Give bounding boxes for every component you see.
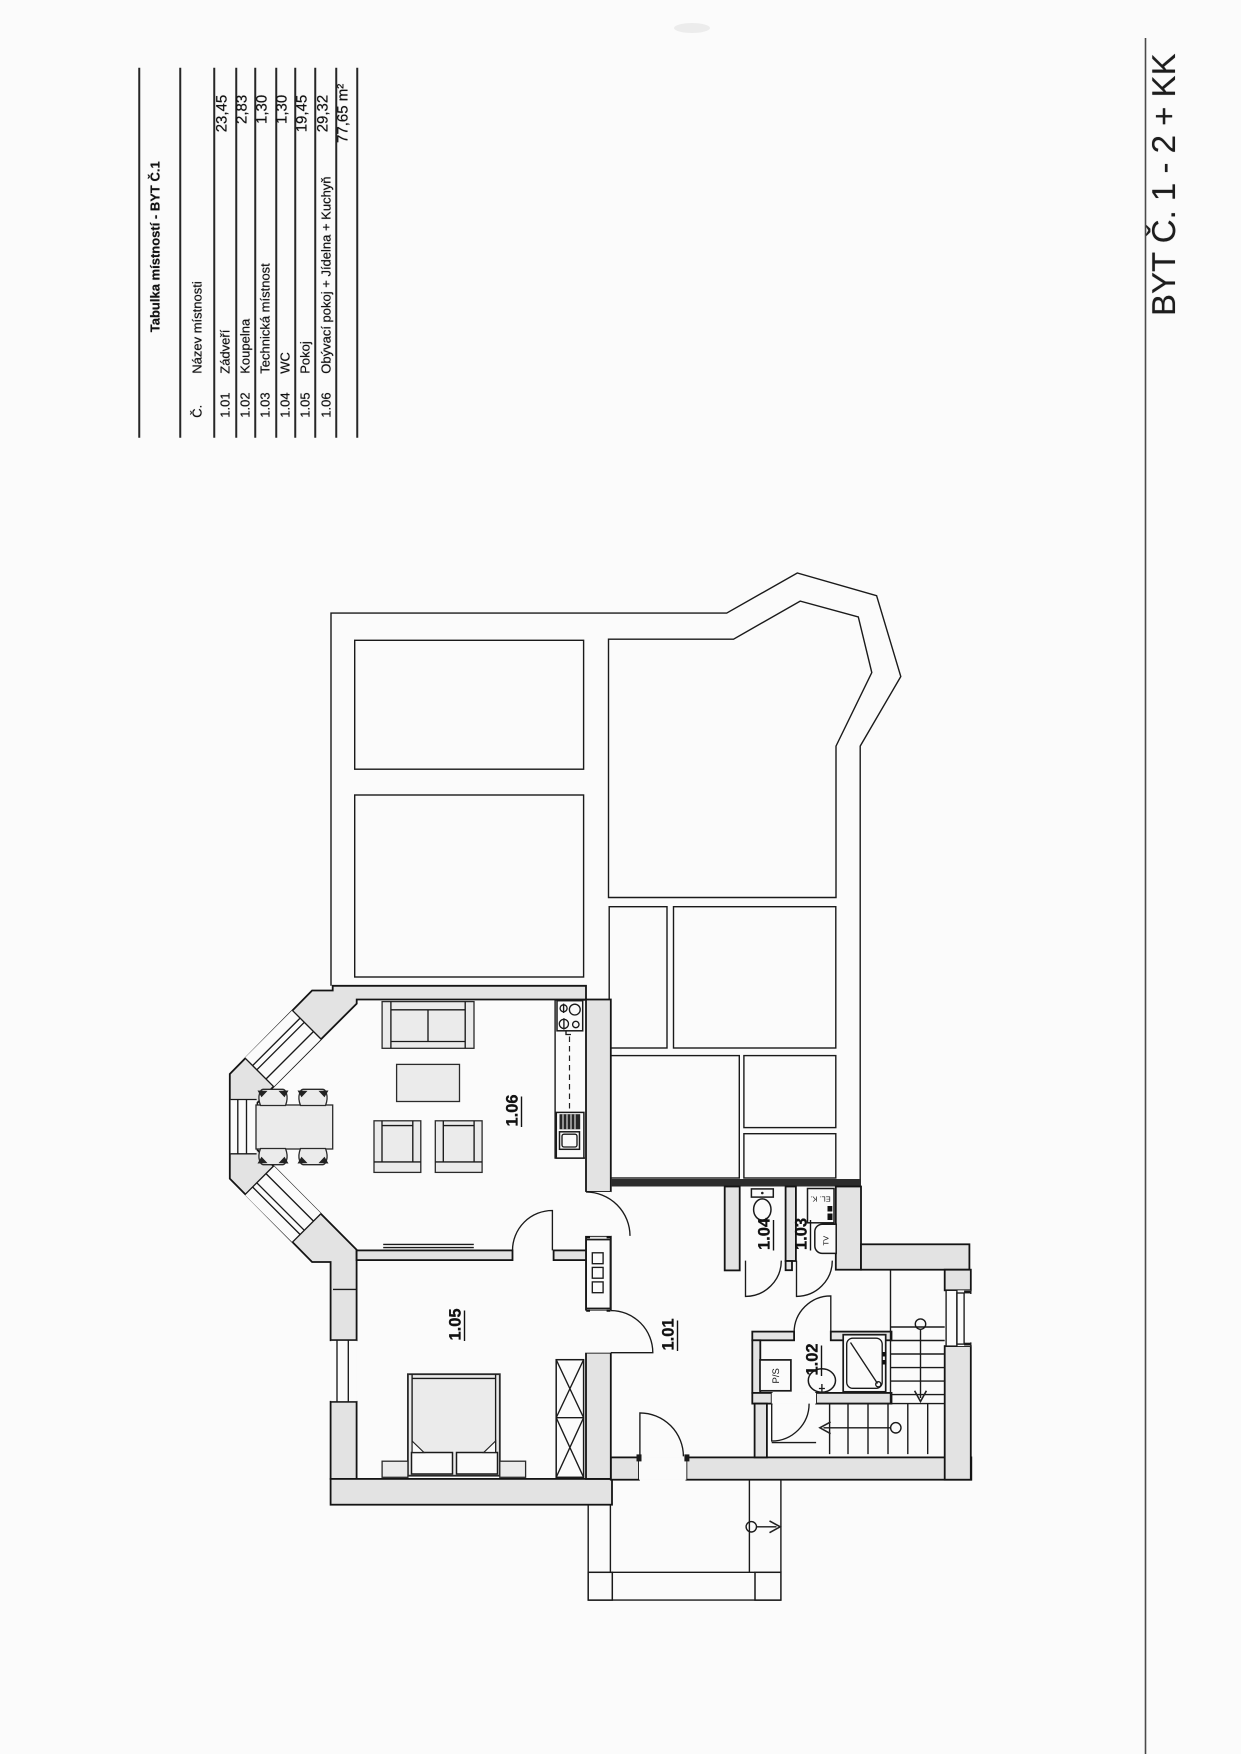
svg-text:TV: TV <box>822 1236 831 1246</box>
svg-text:1.01: 1.01 <box>660 1318 678 1350</box>
svg-text:1.04: 1.04 <box>756 1217 774 1250</box>
svg-text:1.03: 1.03 <box>793 1218 811 1250</box>
svg-text:1.06: 1.06 <box>504 1094 522 1126</box>
svg-text:P/S: P/S <box>771 1368 782 1383</box>
svg-text:1.02: 1.02 <box>804 1343 822 1375</box>
svg-text:EL. K.: EL. K. <box>810 1195 830 1204</box>
svg-text:1.05: 1.05 <box>447 1308 465 1340</box>
